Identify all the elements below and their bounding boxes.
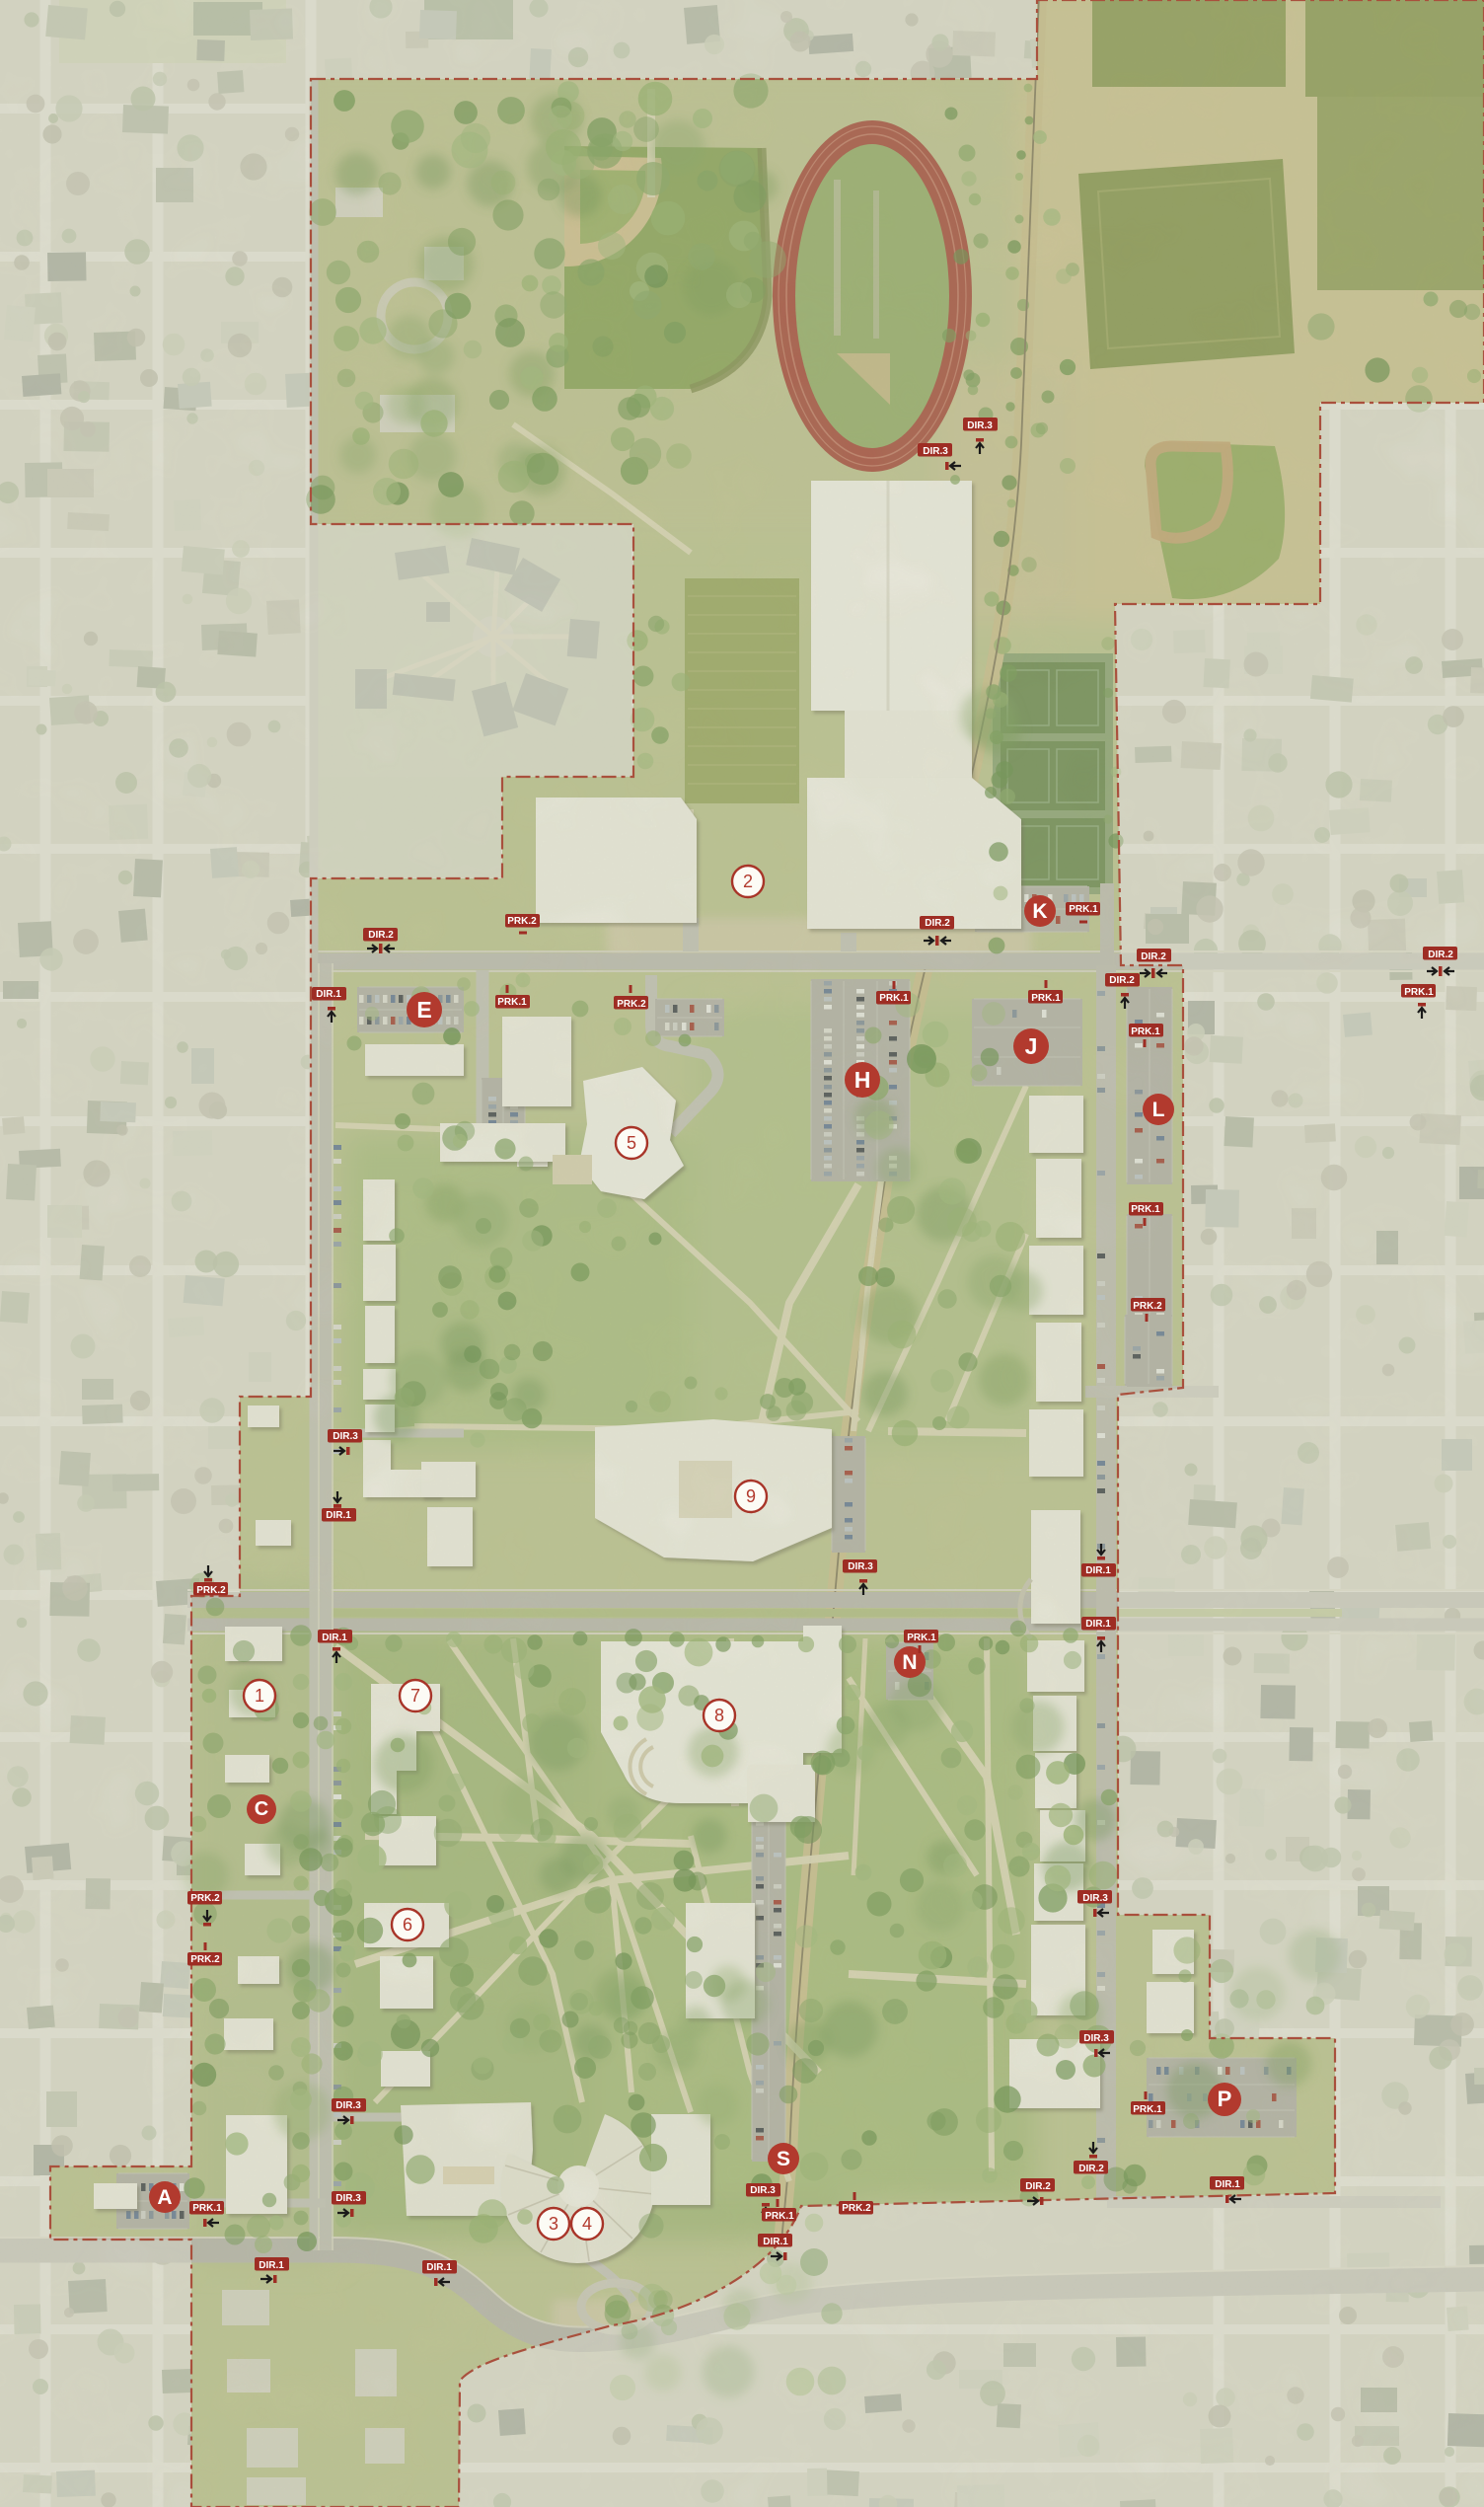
- svg-text:A: A: [157, 2186, 172, 2209]
- svg-text:PRK.2: PRK.2: [196, 1585, 226, 1596]
- svg-text:DIR.3: DIR.3: [335, 2100, 361, 2111]
- svg-text:S: S: [777, 2148, 790, 2170]
- svg-text:DIR.1: DIR.1: [326, 1510, 351, 1521]
- svg-text:DIR.1: DIR.1: [426, 2262, 452, 2273]
- svg-text:DIR.3: DIR.3: [750, 2185, 776, 2196]
- svg-text:5: 5: [627, 1133, 636, 1153]
- svg-text:PRK.1: PRK.1: [192, 2203, 222, 2214]
- svg-text:PRK.2: PRK.2: [842, 2203, 871, 2214]
- svg-text:J: J: [1025, 1033, 1038, 1059]
- svg-text:PRK.1: PRK.1: [1131, 1026, 1160, 1037]
- svg-text:H: H: [854, 1067, 871, 1093]
- svg-text:PRK.2: PRK.2: [1133, 1301, 1162, 1312]
- svg-text:P: P: [1218, 2087, 1232, 2111]
- svg-text:K: K: [1032, 900, 1047, 923]
- svg-text:PRK.1: PRK.1: [1069, 904, 1098, 915]
- svg-text:PRK.1: PRK.1: [1131, 1204, 1160, 1215]
- svg-text:PRK.1: PRK.1: [497, 997, 527, 1008]
- svg-text:DIR.2: DIR.2: [368, 930, 394, 941]
- svg-text:DIR.1: DIR.1: [259, 2260, 284, 2271]
- svg-text:PRK.1: PRK.1: [1133, 2104, 1162, 2115]
- svg-text:DIR.3: DIR.3: [848, 1561, 873, 1572]
- svg-text:DIR.2: DIR.2: [925, 918, 950, 929]
- svg-text:PRK.2: PRK.2: [617, 999, 646, 1010]
- svg-text:N: N: [902, 1651, 917, 1674]
- svg-text:7: 7: [410, 1686, 420, 1706]
- svg-text:PRK.1: PRK.1: [765, 2211, 794, 2222]
- svg-text:L: L: [1152, 1099, 1165, 1121]
- svg-text:DIR.1: DIR.1: [316, 989, 341, 1000]
- svg-text:8: 8: [714, 1706, 724, 1725]
- svg-text:DIR.3: DIR.3: [923, 446, 948, 457]
- svg-text:DIR.1: DIR.1: [763, 2237, 788, 2247]
- svg-text:DIR.3: DIR.3: [1082, 1893, 1108, 1904]
- svg-text:DIR.2: DIR.2: [1025, 2181, 1051, 2192]
- svg-text:DIR.1: DIR.1: [1085, 1619, 1111, 1630]
- svg-text:DIR.2: DIR.2: [1141, 951, 1166, 962]
- svg-text:PRK.1: PRK.1: [1404, 987, 1434, 998]
- svg-text:E: E: [416, 997, 431, 1023]
- svg-text:DIR.1: DIR.1: [322, 1633, 347, 1643]
- svg-text:DIR.1: DIR.1: [1215, 2179, 1240, 2190]
- svg-text:2: 2: [743, 872, 753, 891]
- svg-text:DIR.2: DIR.2: [1078, 2164, 1104, 2174]
- svg-text:DIR.3: DIR.3: [967, 420, 993, 431]
- svg-text:DIR.1: DIR.1: [1085, 1565, 1111, 1576]
- svg-text:DIR.2: DIR.2: [1428, 950, 1453, 960]
- svg-text:3: 3: [549, 2214, 558, 2234]
- svg-text:C: C: [255, 1798, 268, 1820]
- svg-text:6: 6: [403, 1915, 412, 1935]
- svg-text:PRK.1: PRK.1: [1031, 993, 1061, 1004]
- svg-text:1: 1: [255, 1686, 264, 1706]
- svg-text:DIR.3: DIR.3: [335, 2193, 361, 2204]
- svg-text:PRK.1: PRK.1: [907, 1633, 936, 1643]
- svg-text:DIR.3: DIR.3: [1083, 2033, 1109, 2044]
- svg-text:PRK.2: PRK.2: [507, 916, 537, 927]
- svg-text:4: 4: [582, 2214, 592, 2234]
- svg-text:PRK.2: PRK.2: [190, 1954, 220, 1965]
- svg-text:PRK.1: PRK.1: [879, 993, 909, 1004]
- svg-text:DIR.3: DIR.3: [333, 1431, 358, 1442]
- svg-text:9: 9: [746, 1486, 756, 1506]
- svg-text:DIR.2: DIR.2: [1109, 975, 1135, 986]
- svg-text:PRK.2: PRK.2: [190, 1893, 220, 1904]
